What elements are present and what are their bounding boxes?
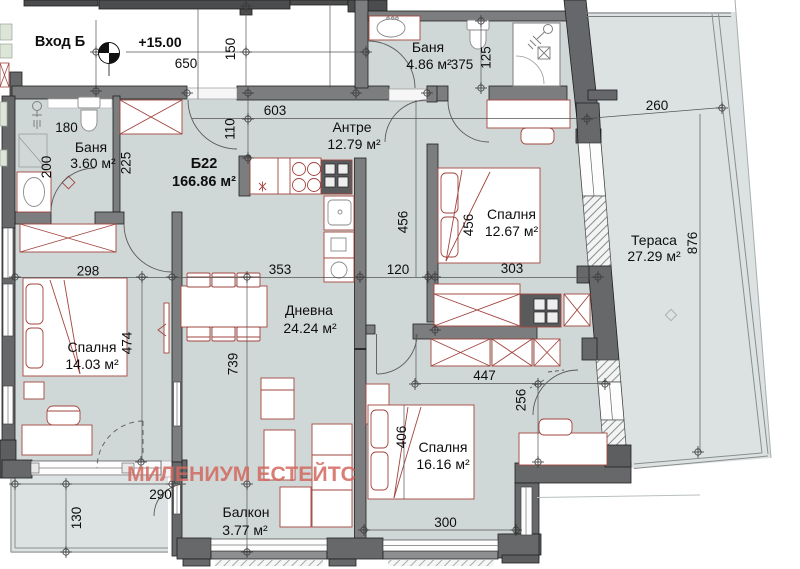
svg-text:Спалня: Спалня: [68, 339, 117, 355]
svg-text:456: 456: [461, 214, 476, 237]
svg-text:16.16 м²: 16.16 м²: [416, 456, 470, 472]
svg-text:110: 110: [223, 118, 238, 140]
svg-text:Спалня: Спалня: [419, 439, 468, 455]
svg-text:Тераса: Тераса: [631, 232, 677, 248]
svg-text:256: 256: [514, 389, 529, 412]
svg-text:+15.00: +15.00: [138, 34, 181, 50]
svg-text:303: 303: [501, 261, 524, 276]
svg-text:260: 260: [646, 98, 669, 113]
svg-text:Дневна: Дневна: [285, 302, 333, 318]
svg-text:603: 603: [264, 103, 287, 118]
svg-text:298: 298: [77, 264, 100, 279]
svg-text:650: 650: [175, 56, 198, 71]
svg-text:456: 456: [396, 211, 411, 234]
svg-text:14.03 м²: 14.03 м²: [65, 356, 119, 372]
svg-text:225: 225: [119, 152, 134, 175]
svg-text:Баня: Баня: [412, 39, 444, 55]
svg-text:Спалня: Спалня: [487, 206, 536, 222]
svg-text:739: 739: [226, 353, 241, 376]
svg-text:150: 150: [223, 38, 238, 61]
svg-text:130: 130: [69, 507, 84, 530]
svg-text:Вход Б: Вход Б: [35, 34, 85, 50]
svg-text:474: 474: [120, 331, 135, 354]
svg-text:876: 876: [685, 232, 700, 255]
svg-text:МИЛЕНИУМ ЕСТЕЙТС: МИЛЕНИУМ ЕСТЕЙТС: [127, 462, 356, 486]
svg-text:24.24 м²: 24.24 м²: [283, 320, 337, 336]
svg-text:180: 180: [55, 120, 78, 135]
svg-text:166.86 м²: 166.86 м²: [172, 174, 236, 190]
svg-text:27.29 м²: 27.29 м²: [627, 248, 681, 264]
svg-text:12.79 м²: 12.79 м²: [327, 136, 381, 152]
svg-text:Антре: Антре: [332, 119, 371, 135]
svg-text:3.77 м²: 3.77 м²: [222, 522, 268, 538]
svg-text:353: 353: [269, 262, 292, 277]
svg-text:Баня: Баня: [75, 139, 107, 155]
svg-text:375: 375: [451, 57, 474, 72]
svg-text:447: 447: [473, 368, 496, 383]
svg-text:12.67 м²: 12.67 м²: [485, 223, 539, 239]
svg-text:406: 406: [394, 426, 409, 449]
svg-text:200: 200: [39, 156, 54, 179]
svg-text:4.86 м²: 4.86 м²: [406, 56, 452, 72]
svg-text:290: 290: [149, 487, 172, 502]
svg-text:125: 125: [479, 46, 494, 69]
svg-text:300: 300: [434, 515, 457, 530]
svg-text:Балкон: Балкон: [223, 504, 270, 520]
svg-text:Б22: Б22: [191, 156, 218, 172]
svg-text:120: 120: [387, 262, 410, 277]
svg-text:3.60 м²: 3.60 м²: [70, 155, 116, 171]
